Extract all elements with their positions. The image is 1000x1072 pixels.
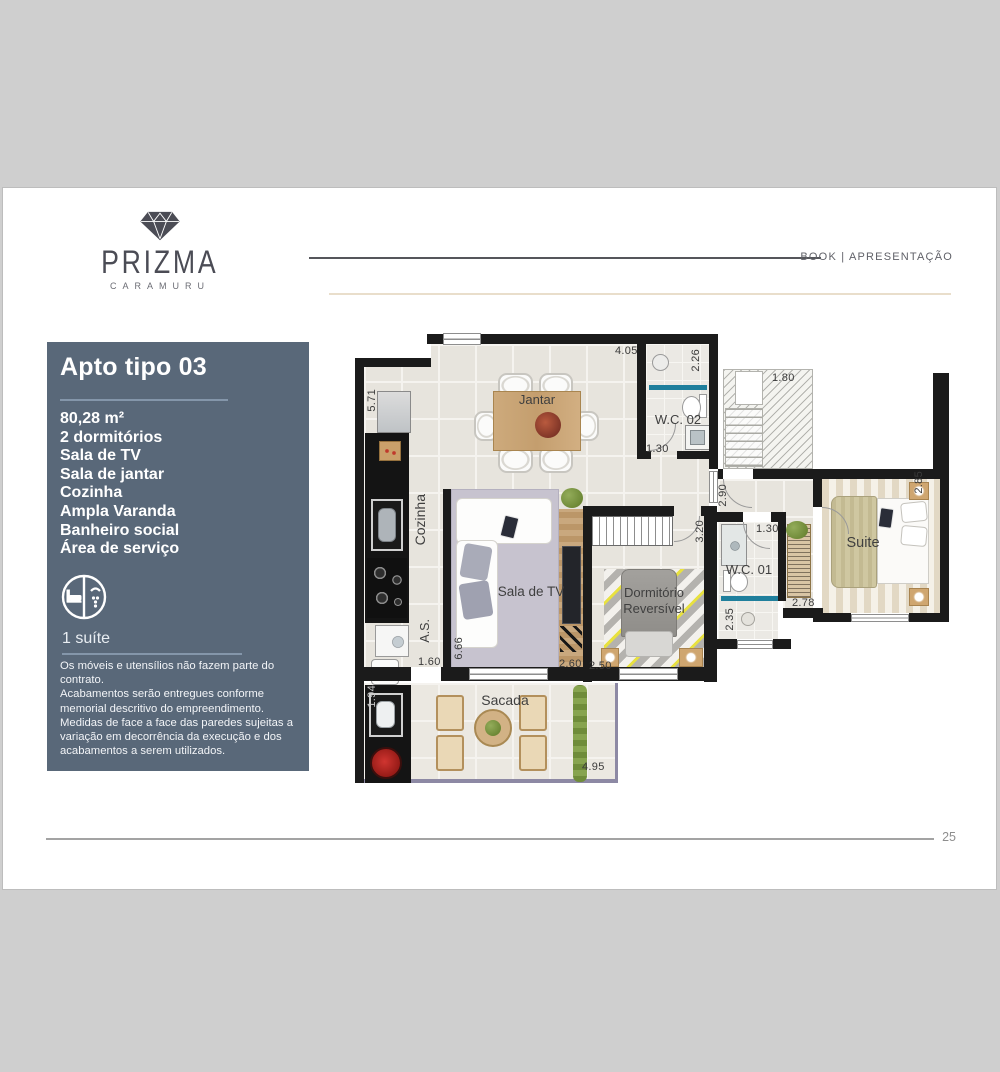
header-accent-line: [329, 293, 951, 295]
section-label: BOOK | APRESENTAÇÃO: [800, 251, 953, 263]
screenshot-canvas: { "header": { "brand_name": "PRIZMA", "b…: [0, 0, 1000, 1072]
cooktop: [367, 558, 407, 618]
room-label-sala: Sala de TV: [485, 584, 577, 599]
measurement: 2.85: [913, 471, 925, 494]
disclaimer-paragraph: Medidas de face a face das paredes sujei…: [60, 716, 298, 759]
measurement: 2.50: [589, 660, 612, 672]
spec-item: 80,28 m²: [60, 410, 179, 429]
wall-segment: [909, 613, 949, 622]
shower-glass: [721, 596, 779, 601]
kitchen-sink: [371, 499, 403, 551]
wall-segment: [813, 469, 949, 479]
measurement: 1.94: [366, 685, 378, 708]
room-label-cozinha: Cozinha: [412, 494, 428, 545]
wall-segment: [778, 512, 786, 601]
floor-notch: [355, 326, 431, 358]
room-label-dormitorio: Dormitório: [604, 585, 704, 600]
wall-segment: [813, 469, 822, 507]
header-divider-line: [309, 257, 821, 259]
disclaimer-paragraph: Acabamentos serão entregues conforme mem…: [60, 687, 298, 715]
measurement: 4.05: [615, 345, 638, 357]
suite-count-label: 1 suíte: [62, 630, 110, 648]
plant-icon: [485, 720, 501, 736]
room-label-reversivel: Reversível: [604, 601, 704, 616]
room-label-jantar: Jantar: [493, 392, 581, 407]
wall-segment: [355, 358, 431, 367]
measurement: 2.35: [724, 608, 736, 631]
measurement: 2.60: [559, 658, 582, 670]
wall-segment: [933, 373, 949, 479]
presentation-page: PRIZMA CARAMURU BOOK | APRESENTAÇÃO Apto…: [2, 187, 997, 890]
footer-divider-line: [46, 838, 934, 840]
shower-head-icon: [652, 354, 669, 371]
wall-segment: [583, 506, 592, 682]
disclaimer-paragraph: Os móveis e utensílios não fazem parte d…: [60, 659, 298, 687]
spec-item: Cozinha: [60, 484, 179, 503]
balcony-chair: [436, 735, 464, 771]
rack-detail: [560, 626, 582, 652]
wall-segment: [583, 506, 674, 516]
dorm-nightstand: [679, 648, 703, 667]
wall-segment: [753, 469, 813, 479]
sink-basin: [376, 701, 395, 728]
spec-list: 80,28 m² 2 dormitórios Sala de TV Sala d…: [60, 410, 179, 559]
measurement: 1.30: [756, 523, 779, 535]
measurement: 2.26: [690, 349, 702, 372]
spec-item: 2 dormitórios: [60, 429, 179, 448]
hall-stairs: [725, 408, 763, 467]
room-label-as: A.S.: [418, 619, 432, 643]
brand-name: PRIZMA: [101, 245, 218, 282]
sink-basin: [378, 508, 396, 542]
washing-machine: [375, 625, 409, 657]
measurement: 2.90: [717, 484, 729, 507]
hall-shaft: [735, 371, 763, 405]
window: [737, 640, 773, 649]
plant-icon: [561, 488, 583, 508]
balcony-chair: [519, 735, 547, 771]
brand-subtitle: CARAMURU: [76, 281, 244, 291]
disclaimer-text: Os móveis e utensílios não fazem parte d…: [60, 659, 298, 758]
suite-pillow: [900, 501, 928, 524]
brand-logo: PRIZMA CARAMURU: [76, 210, 244, 291]
wall-segment: [443, 489, 451, 668]
window: [469, 668, 548, 680]
measurement: 1.30: [646, 443, 669, 455]
grill: [370, 747, 402, 779]
window: [443, 333, 481, 345]
cutting-board: [379, 441, 401, 461]
window: [851, 614, 909, 622]
measurement: 5.71: [366, 389, 378, 412]
measurement: 1.60: [418, 656, 441, 668]
window: [619, 668, 678, 680]
suite-nightstand: [909, 588, 929, 606]
spec-item: Sala de TV: [60, 447, 179, 466]
tablet-on-bed: [878, 507, 895, 529]
room-label-sacada: Sacada: [469, 692, 541, 708]
balcony-chair: [436, 695, 464, 731]
spec-item: Sala de jantar: [60, 466, 179, 485]
wall-segment: [637, 334, 646, 459]
shower-drain-icon: [741, 612, 755, 626]
door-opening: [411, 667, 441, 681]
measurement: 3.20: [694, 520, 706, 543]
dorm-bed-pillow: [625, 631, 673, 657]
room-label-suite: Suite: [832, 535, 894, 551]
wall-segment: [713, 639, 737, 649]
wall-segment: [709, 334, 718, 469]
wall-segment: [773, 639, 791, 649]
suite-icon: [60, 573, 108, 626]
room-label-wc02: W.C. 02: [643, 412, 713, 427]
bathroom-sink: [721, 524, 747, 566]
spec-item: Banheiro social: [60, 522, 179, 541]
divider: [60, 399, 228, 401]
apartment-info-panel: Apto tipo 03 80,28 m² 2 dormitórios Sala…: [47, 342, 309, 771]
suite-pillow: [900, 525, 928, 547]
wall-segment: [713, 512, 743, 522]
wall-segment: [940, 469, 949, 622]
spec-item: Ampla Varanda: [60, 503, 179, 522]
table-centerpiece: [535, 412, 561, 438]
spec-item: Área de serviço: [60, 540, 179, 559]
plant-icon: [786, 521, 808, 539]
apartment-title: Apto tipo 03: [60, 353, 207, 382]
dorm-wardrobe: [591, 516, 673, 546]
sofa-cushion: [459, 543, 492, 581]
measurement: 6.66: [453, 637, 465, 660]
room-label-wc01: W.C. 01: [718, 562, 780, 577]
floor-plan: Jantar Cozinha W.C. 02 Sala de TV Dormit…: [355, 326, 955, 788]
sink-basin: [690, 430, 705, 445]
measurement: 4.95: [582, 761, 605, 773]
wall-segment: [718, 469, 723, 479]
measurement: 2.78: [792, 597, 815, 609]
diamond-logo-icon: [140, 210, 180, 242]
page-number: 25: [942, 830, 956, 844]
divider: [62, 653, 242, 655]
wall-segment: [355, 358, 364, 783]
bathroom-sink: [685, 425, 710, 450]
fridge: [377, 391, 411, 433]
measurement: 1.80: [772, 372, 795, 384]
shower-glass: [649, 385, 707, 390]
wall-segment: [677, 451, 718, 459]
wall-segment: [813, 613, 851, 622]
